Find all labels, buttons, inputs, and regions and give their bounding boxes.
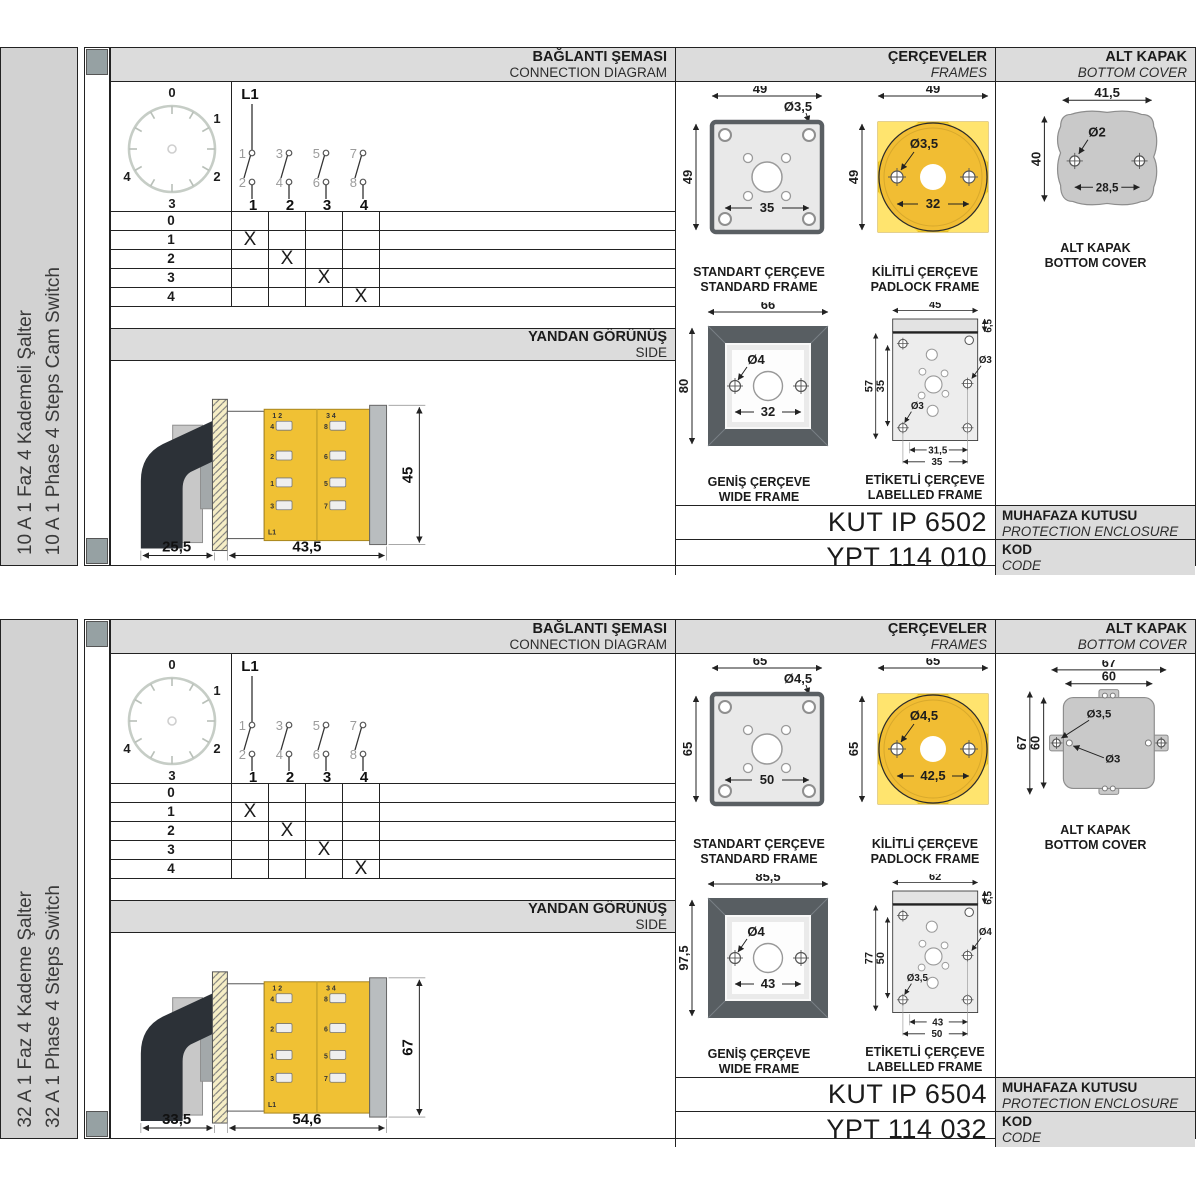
connection-header-en: CONNECTION DIAGRAM [111,637,667,652]
code-label-tr: KOD [1002,1114,1189,1130]
dim-hole-dia-2: Ø3 [1105,754,1120,766]
dim-width: 49 [926,86,940,96]
dim-hole-dia-1: Ø3 [979,355,993,366]
dim-body-depth: 43,5 [292,539,321,556]
dim-hole-spacing: 43 [761,976,775,991]
terminal-label: 2 [270,1027,274,1034]
mark-cell: X [232,803,269,821]
product-sidebar: 10 A 1 Faz 4 Kademeli Şalter 10 A 1 Phas… [0,47,78,566]
dim-hole-dia: Ø4,5 [784,671,812,686]
code-label: KOD CODE [996,539,1195,575]
side-header-en: SIDE [111,917,667,932]
enclosure-label-tr: MUHAFAZA KUTUSU [1002,508,1189,524]
dial-pos-1: 1 [213,111,220,126]
enclosure-code: KUT IP 6502 [676,505,996,539]
terminal-label: 8 [324,424,328,431]
cover-header-en: BOTTOM COVER [996,637,1187,652]
mark-cell [269,231,306,249]
terminal-label: 3 [270,504,274,511]
mark-cell [269,288,306,306]
labelled-frame-caption: ETİKETLİ ÇERÇEVE LABELLED FRAME [865,473,984,503]
contact-label: 3 [276,718,283,733]
contact-label: 4 [276,175,283,190]
frames-header: ÇERÇEVELER FRAMES [676,48,996,82]
product-code: YPT 114 010 [676,539,996,575]
catalog-page: 10 A 1 Faz 4 Kademeli Şalter 10 A 1 Phas… [0,0,1200,1139]
bottom-cover-caption: ALT KAPAK BOTTOM COVER [1045,241,1147,271]
mark-cell [306,860,343,878]
table-row: 4X [111,860,675,879]
product-section-10a: 10 A 1 Faz 4 Kademeli Şalter 10 A 1 Phas… [0,47,1200,566]
dim-height: 40 [1028,152,1043,167]
mark-cell [306,784,343,802]
contact-label: 7 [350,718,357,733]
step-label: 1 [111,803,232,821]
labelled-frame-caption: ETİKETLİ ÇERÇEVE LABELLED FRAME [865,1045,984,1075]
side-header-tr: YANDAN GÖRÜNÜŞ [111,329,667,345]
contact-label: 8 [350,175,357,190]
product-name-en: 10 A 1 Phase 4 Steps Cam Switch [44,267,63,555]
contact-label: 4 [276,747,283,762]
mark-cell [343,231,380,249]
mark-cell [343,803,380,821]
dim-hole-dia: Ø4 [747,352,765,367]
contact-label: 5 [313,146,320,161]
dim-width: 49 [753,86,767,96]
strip-marker-bottom [86,538,108,564]
caption-tr: KİLİTLİ ÇERÇEVE [871,837,980,852]
dim-bottom-2: 50 [931,1029,942,1040]
mark-cell: X [269,822,306,840]
enclosure-label: MUHAFAZA KUTUSU PROTECTION ENCLOSURE [996,505,1195,539]
frames-header: ÇERÇEVELER FRAMES [676,620,996,654]
caption-tr: ALT KAPAK [1045,241,1147,256]
dim-band: 6,5 [983,890,994,904]
table-row: 1X [111,231,675,250]
rotary-dial-figure: 0 1 2 3 4 [111,82,232,211]
dim-height: 49 [846,170,861,184]
dim-height: 77 [863,952,875,964]
caption-en: BOTTOM COVER [1045,838,1147,853]
circuit-diagram: L1 1 [232,654,675,783]
terminal-pair-left: 1 2 [272,986,282,993]
mark-cell: X [269,250,306,268]
caption-en: PADLOCK FRAME [871,852,980,867]
terminal-label: 7 [324,504,328,511]
terminal-label: 4 [270,424,274,431]
caption-tr: ETİKETLİ ÇERÇEVE [865,1045,984,1060]
table-row: 3X [111,841,675,860]
product-name-tr: 32 A 1 Faz 4 Kademe Şalter [16,891,35,1128]
terminal-label: 5 [324,1053,328,1060]
caption-tr: KİLİTLİ ÇERÇEVE [871,265,980,280]
dim-height: 57 [863,380,875,392]
table-row: 2X [111,250,675,269]
padlock-frame-caption: KİLİTLİ ÇERÇEVE PADLOCK FRAME [871,837,980,867]
table-row: 3X [111,269,675,288]
caption-tr: GENİŞ ÇERÇEVE [708,1047,811,1062]
table-row: 1X [111,803,675,822]
dim-band: 6,5 [983,318,994,332]
terminal-label: 3 [270,1076,274,1083]
labelled-frame-figure: 62 6,5 [842,870,1008,1077]
step-label: 0 [111,784,232,802]
step-label: 3 [111,269,232,287]
dim-hole-dia: Ø3,5 [784,99,812,114]
mark-cell: X [343,860,380,878]
diagram-row: 0 1 2 3 4 L1 [111,82,675,211]
caption-en: LABELLED FRAME [865,488,984,503]
dim-hole-spacing: 32 [926,196,940,211]
terminal-label: 6 [324,454,328,461]
standard-frame-caption: STANDART ÇERÇEVE STANDARD FRAME [693,837,825,867]
caption-tr: ALT KAPAK [1045,823,1147,838]
enclosure-label-tr: MUHAFAZA KUTUSU [1002,1080,1189,1096]
contact-label: 3 [276,146,283,161]
caption-en: WIDE FRAME [708,490,811,505]
connection-header-en: CONNECTION DIAGRAM [111,65,667,80]
step-label: 2 [111,822,232,840]
bottom-cover-figure: 67 60 Ø3,5 Ø3 6 [996,654,1195,1077]
mark-cell [306,822,343,840]
strip-marker-top [86,621,108,647]
dim-hole-spacing: 35 [760,200,774,215]
dim-body-depth: 54,6 [292,1111,321,1128]
dial-pos-3: 3 [168,768,175,783]
mark-cell [269,841,306,859]
caption-tr: STANDART ÇERÇEVE [693,265,825,280]
dim-height: 97,5 [676,945,691,970]
enclosure-code: KUT IP 6504 [676,1077,996,1111]
code-label-tr: KOD [1002,542,1189,558]
step-label: 0 [111,212,232,230]
terminal-source-label: L1 [268,530,276,537]
side-header-en: SIDE [111,345,667,360]
terminal-label: 2 [270,454,274,461]
bottom-cover-caption: ALT KAPAK BOTTOM COVER [1045,823,1147,853]
step-label: 2 [111,250,232,268]
dim-bottom-1: 43 [932,1017,943,1028]
connection-header: BAĞLANTI ŞEMASI CONNECTION DIAGRAM [111,48,676,82]
terminal-label: 1 [270,481,274,488]
mark-cell [269,212,306,230]
table-row: 0 [111,784,675,803]
mark-cell: X [306,841,343,859]
contact-label: 8 [350,747,357,762]
dial-pos-0: 0 [168,85,175,100]
cover-header: ALT KAPAK BOTTOM COVER [996,48,1195,82]
code-label: KOD CODE [996,1111,1195,1147]
frames-header-en: FRAMES [676,65,987,80]
terminal-label: 5 [324,481,328,488]
cover-header-en: BOTTOM COVER [996,65,1187,80]
cover-header: ALT KAPAK BOTTOM COVER [996,620,1195,654]
contact-label: 6 [313,175,320,190]
circuit-source-label: L1 [241,86,259,103]
dim-hole-dia: Ø4,5 [910,708,938,723]
dim-width: 85,5 [755,874,780,884]
padlock-frame-figure: 49 Ø3,5 49 32 [842,82,1008,298]
connection-column: 0 1 2 3 4 L1 [111,654,676,1147]
cover-header-tr: ALT KAPAK [996,49,1187,65]
dial-pos-0: 0 [168,657,175,672]
dim-hole-spacing: 28,5 [1095,181,1118,194]
mark-cell [306,212,343,230]
labelled-frame-figure: 45 6,5 [842,298,1008,505]
mark-cell [269,784,306,802]
mark-cell [343,212,380,230]
frames-grid: 65 Ø4,5 65 50 STANDART ÇERÇEVE [676,654,996,1077]
terminal-label: 8 [324,997,328,1004]
mark-cell [306,231,343,249]
frames-grid: 49 Ø3,5 49 35 STANDART ÇERÇEVE [676,82,996,505]
mark-cell [306,250,343,268]
dim-hole-spacing: 32 [761,404,775,419]
connection-column: 0 1 2 3 4 L1 [111,82,676,575]
dim-bottom-2: 35 [931,457,942,468]
caption-en: STANDARD FRAME [693,280,825,295]
mark-cell [232,250,269,268]
circuit-diagram: L1 1 [232,82,675,211]
caption-tr: STANDART ÇERÇEVE [693,837,825,852]
section-main: BAĞLANTI ŞEMASI CONNECTION DIAGRAM ÇERÇE… [110,619,1196,1139]
step-label: 1 [111,231,232,249]
terminal-pair-right: 3 4 [326,986,336,993]
mark-cell: X [232,231,269,249]
terminal-label: 6 [324,1027,328,1034]
dim-height: 65 [846,742,861,756]
diagram-row: 0 1 2 3 4 L1 [111,654,675,783]
product-name-en: 32 A 1 Phase 4 Steps Switch [44,885,63,1128]
pole-label: 2 [286,769,294,783]
contact-label: 7 [350,146,357,161]
dial-pos-4: 4 [123,741,131,756]
dim-height: 80 [676,379,691,393]
terminal-label: 7 [324,1076,328,1083]
dim-hole-dia-1: Ø3,5 [1086,708,1111,720]
mark-cell [269,803,306,821]
step-table: 0 1X 2X 3X 4X [111,783,675,879]
wide-frame-caption: GENİŞ ÇERÇEVE WIDE FRAME [708,1047,811,1077]
product-code: YPT 114 032 [676,1111,996,1147]
mark-cell [232,860,269,878]
connection-header: BAĞLANTI ŞEMASI CONNECTION DIAGRAM [111,620,676,654]
dial-pos-1: 1 [213,683,220,698]
dim-hole-dia-2: Ø3 [911,401,925,412]
contact-label: 2 [239,747,246,762]
enclosure-label: MUHAFAZA KUTUSU PROTECTION ENCLOSURE [996,1077,1195,1111]
dim-inner-height: 35 [875,380,887,392]
contact-label: 1 [239,718,246,733]
padlock-frame-figure: 65 Ø4,5 65 42,5 [842,654,1008,870]
table-row: 0 [111,212,675,231]
mark-cell [232,288,269,306]
dim-hole-spacing: 42,5 [920,768,945,783]
caption-en: LABELLED FRAME [865,1060,984,1075]
step-table: 0 1X 2X 3X 4X [111,211,675,307]
mark-cell [343,822,380,840]
dim-height: 49 [680,170,695,184]
side-view-header: YANDAN GÖRÜNÜŞ SIDE [111,900,675,933]
pole-label: 2 [286,197,294,211]
caption-en: STANDARD FRAME [693,852,825,867]
dim-width: 65 [926,658,940,668]
terminal-label: 4 [270,997,274,1004]
mark-cell [343,784,380,802]
dim-bottom-1: 31,5 [928,445,948,456]
mark-cell [269,860,306,878]
enclosure-label-en: PROTECTION ENCLOSURE [1002,524,1189,540]
pole-label: 1 [249,769,257,783]
mark-cell [232,822,269,840]
side-header-tr: YANDAN GÖRÜNÜŞ [111,901,667,917]
enclosure-label-en: PROTECTION ENCLOSURE [1002,1096,1189,1112]
mark-cell: X [343,288,380,306]
connection-header-tr: BAĞLANTI ŞEMASI [111,49,667,65]
mark-cell [232,269,269,287]
section-main: BAĞLANTI ŞEMASI CONNECTION DIAGRAM ÇERÇE… [110,47,1196,566]
contact-label: 1 [239,146,246,161]
pole-label: 3 [323,769,331,783]
mark-cell [232,841,269,859]
step-label: 3 [111,841,232,859]
dim-front-depth: 25,5 [162,539,191,556]
mark-cell [306,288,343,306]
dial-pos-2: 2 [213,169,220,184]
product-name-tr: 10 A 1 Faz 4 Kademeli Şalter [16,310,35,555]
mark-cell [232,784,269,802]
step-label: 4 [111,288,232,306]
product-sidebar: 32 A 1 Faz 4 Kademe Şalter 32 A 1 Phase … [0,619,78,1139]
dim-width: 62 [929,874,941,883]
mark-cell [232,212,269,230]
binding-strip [84,619,110,1139]
bottom-cover-figure: 41,5 Ø2 40 28,5 ALT KAPAK BOTTOM COVER [996,82,1195,505]
wide-frame-figure: 85,5 Ø4 97,5 43 [676,870,842,1077]
side-view-figure: 1 2 3 4 4 2 1 3 8 6 5 7 L1 67 [111,933,675,1147]
terminal-source-label: L1 [268,1102,276,1109]
circuit-source-label: L1 [241,658,259,675]
product-section-32a: 32 A 1 Faz 4 Kademe Şalter 32 A 1 Phase … [0,619,1200,1139]
standard-frame-figure: 49 Ø3,5 49 35 STANDART ÇERÇEVE [676,82,842,298]
pole-label: 4 [360,197,369,211]
code-label-en: CODE [1002,1130,1189,1146]
dim-hole-dia-2: Ø3,5 [907,973,929,984]
mark-cell [343,841,380,859]
terminal-pair-right: 3 4 [326,413,336,420]
code-label-en: CODE [1002,558,1189,574]
pole-label: 3 [323,197,331,211]
standard-frame-figure: 65 Ø4,5 65 50 STANDART ÇERÇEVE [676,654,842,870]
contact-label: 6 [313,747,320,762]
table-row: 2X [111,822,675,841]
pole-label: 4 [360,769,369,783]
dim-width: 65 [753,658,767,668]
frames-header-tr: ÇERÇEVELER [676,621,987,637]
panel-hatch [212,399,227,550]
frames-header-tr: ÇERÇEVELER [676,49,987,65]
dim-width: 45 [929,302,941,311]
contact-label: 5 [313,718,320,733]
dim-hole-dia-1: Ø4 [979,927,993,938]
mark-cell [343,269,380,287]
caption-en: PADLOCK FRAME [871,280,980,295]
wide-frame-figure: 66 Ø4 80 32 [676,298,842,505]
dim-width: 41,5 [1094,88,1120,100]
dim-height-outer: 67 [1013,736,1028,750]
dial-pos-2: 2 [213,741,220,756]
caption-en: BOTTOM COVER [1045,256,1147,271]
mark-cell [269,269,306,287]
dim-hole-spacing: 50 [760,772,774,787]
dim-height: 65 [680,742,695,756]
mark-cell [306,803,343,821]
contact-label: 2 [239,175,246,190]
step-label: 4 [111,860,232,878]
pole-label: 1 [249,197,257,211]
binding-strip [84,47,110,566]
dim-hole-dia: Ø4 [747,924,765,939]
dim-width: 66 [761,302,775,312]
side-view-header: YANDAN GÖRÜNÜŞ SIDE [111,328,675,361]
dim-hole-dia: Ø2 [1088,125,1106,140]
dim-hole-dia: Ø3,5 [910,136,938,151]
dim-height: 45 [399,467,416,484]
strip-marker-bottom [86,1111,108,1137]
wide-frame-caption: GENİŞ ÇERÇEVE WIDE FRAME [708,475,811,505]
frames-header-en: FRAMES [676,637,987,652]
mark-cell [343,250,380,268]
dim-height-inner: 60 [1027,736,1042,750]
terminal-pair-left: 1 2 [272,413,282,420]
caption-tr: ETİKETLİ ÇERÇEVE [865,473,984,488]
dial-pos-3: 3 [168,196,175,211]
terminal-label: 1 [270,1053,274,1060]
dial-pos-4: 4 [123,169,131,184]
cover-header-tr: ALT KAPAK [996,621,1187,637]
dim-front-depth: 33,5 [162,1111,191,1128]
dim-height: 67 [399,1039,416,1056]
dim-inner-height: 50 [875,952,887,964]
panel-hatch [212,972,227,1123]
padlock-frame-caption: KİLİTLİ ÇERÇEVE PADLOCK FRAME [871,265,980,295]
mark-cell: X [306,269,343,287]
dim-width-inner: 60 [1101,669,1115,684]
caption-en: WIDE FRAME [708,1062,811,1077]
side-view-figure: 1 2 3 4 4 2 1 3 8 6 5 7 L1 45 [111,361,675,575]
standard-frame-caption: STANDART ÇERÇEVE STANDARD FRAME [693,265,825,295]
strip-marker-top [86,49,108,75]
rotary-dial-figure: 0 1 2 3 4 [111,654,232,783]
connection-header-tr: BAĞLANTI ŞEMASI [111,621,667,637]
table-row: 4X [111,288,675,307]
caption-tr: GENİŞ ÇERÇEVE [708,475,811,490]
